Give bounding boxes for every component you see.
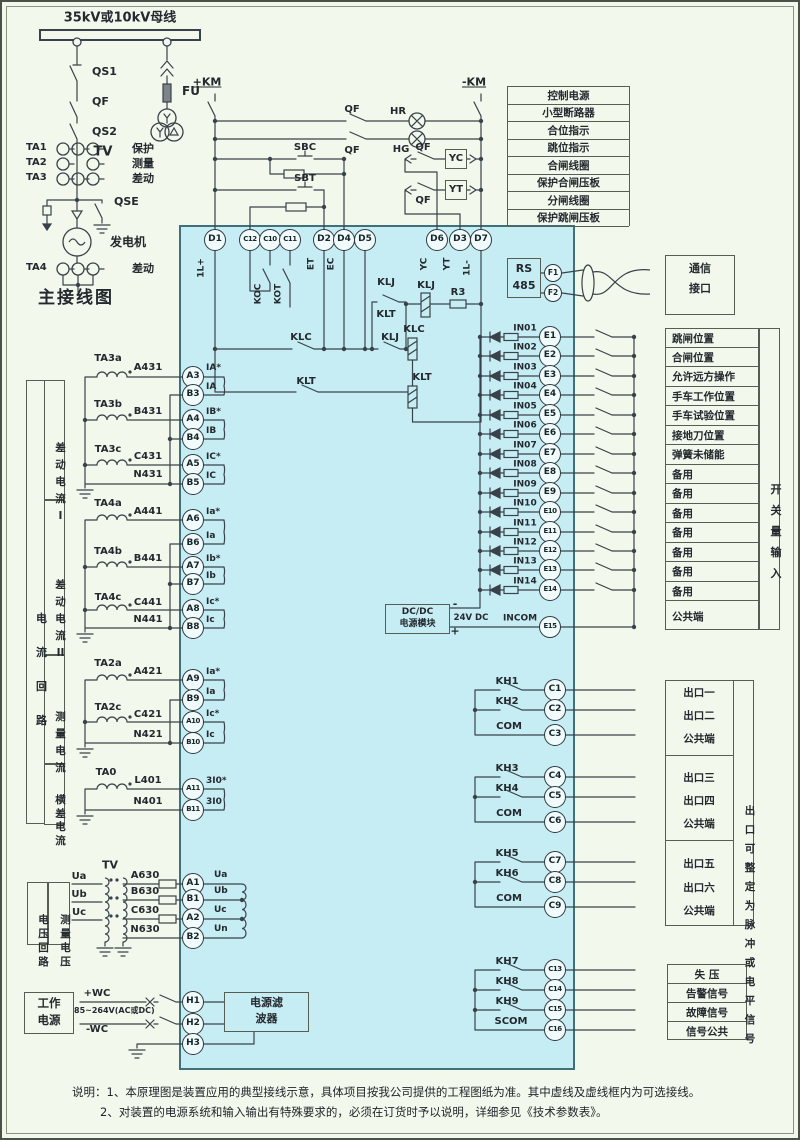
ta0-label: TA0 bbox=[96, 768, 117, 778]
legend-row: 保护合闸压板 bbox=[508, 175, 629, 193]
dcdc-minus-label: - bbox=[453, 599, 458, 610]
sig-ic2-star: Ic* bbox=[206, 598, 219, 607]
kh5-label: KH5 bbox=[495, 849, 518, 859]
terminal-A6: A6 bbox=[182, 509, 204, 531]
wire-n630: N630 bbox=[130, 925, 159, 935]
rs485-box: RS 485 bbox=[507, 258, 541, 298]
hg-lamp-label: HG bbox=[393, 145, 410, 155]
output-label: 出口五 bbox=[683, 859, 715, 870]
ta2-label: TA2 bbox=[26, 158, 47, 168]
ta2c-label: TA2c bbox=[95, 703, 122, 713]
ta2a-label: TA2a bbox=[94, 659, 122, 669]
rs485-label: RS bbox=[508, 259, 540, 278]
in-sig-label: IN07 bbox=[513, 442, 536, 451]
terminal-H2: H2 bbox=[182, 1013, 204, 1035]
kh1-label: KH1 bbox=[495, 677, 518, 687]
ta4a-label: TA4a bbox=[94, 499, 122, 509]
legend-row: 控制电源 bbox=[508, 87, 629, 105]
terminal-E2: E2 bbox=[539, 345, 561, 367]
kh4-label: KH4 bbox=[495, 784, 518, 794]
voltage-loop-label: 电压回路 bbox=[37, 913, 50, 969]
input-label: 备用 bbox=[666, 582, 758, 601]
input-label: 手车试验位置 bbox=[666, 406, 758, 426]
terminal-C13: C13 bbox=[544, 959, 566, 981]
output-label: 公共端 bbox=[683, 734, 715, 745]
terminal-C4: C4 bbox=[544, 766, 566, 788]
input-label: 合闸位置 bbox=[666, 348, 758, 367]
sig-ic3-star: Ic* bbox=[206, 710, 219, 719]
sbt-button-label: SBT bbox=[294, 174, 316, 184]
terminal-D4: D4 bbox=[333, 229, 355, 251]
terminal-F1: F1 bbox=[544, 264, 562, 282]
sig-ic-star: IC* bbox=[206, 453, 221, 462]
legend-row: 合闸线圈 bbox=[508, 157, 629, 175]
sbc-button-label: SBC bbox=[294, 143, 316, 153]
terminal-E10: E10 bbox=[539, 501, 561, 523]
terminal-H1: H1 bbox=[182, 991, 204, 1013]
input-label: 备用 bbox=[666, 523, 758, 543]
ta2-use-label: 测量 bbox=[132, 158, 154, 169]
terminal-C5: C5 bbox=[544, 786, 566, 808]
comm-port-box: 通信 接口 bbox=[665, 255, 735, 315]
tag-1l-minus: 1L- bbox=[464, 260, 473, 276]
comm-label: 通信 bbox=[666, 256, 734, 282]
km-minus-label: -KM bbox=[462, 77, 486, 88]
legend-row: 小型断路器 bbox=[508, 105, 629, 123]
incom-label: INCOM bbox=[503, 615, 537, 624]
terminal-C2: C2 bbox=[544, 699, 566, 721]
in-sig-label: IN13 bbox=[513, 558, 536, 567]
sig-ic3: Ic bbox=[206, 731, 215, 740]
page-title: 主接线图 bbox=[38, 290, 114, 307]
klj-rail-contact-label: KLJ bbox=[381, 333, 399, 343]
yc-coil-box: YC bbox=[445, 149, 467, 169]
klt-coil-label: KLT bbox=[412, 373, 431, 383]
kh6-label: KH6 bbox=[495, 869, 518, 879]
terminal-B5: B5 bbox=[182, 473, 204, 495]
klc-switch-label: KLC bbox=[290, 333, 311, 343]
tag-yt: YT bbox=[444, 258, 453, 271]
terminal-F2: F2 bbox=[544, 284, 562, 302]
signal-label: 失 压 bbox=[668, 965, 746, 984]
output-label: 出口六 bbox=[683, 883, 715, 894]
dcdc-plus-label: + bbox=[450, 626, 459, 637]
sig-ia2: Ia bbox=[206, 532, 215, 541]
r3-resistor-label: R3 bbox=[451, 288, 466, 298]
klj-coil-label: KLJ bbox=[417, 281, 435, 291]
legend-row: 分闸线圈 bbox=[508, 192, 629, 210]
wire-a441: A441 bbox=[134, 507, 163, 517]
output-label: 出口四 bbox=[683, 796, 715, 807]
wire-a630: A630 bbox=[131, 871, 160, 881]
sig-ic: IC bbox=[206, 472, 216, 481]
dcdc-label: DC/DC bbox=[386, 605, 449, 619]
input-label: 备用 bbox=[666, 543, 758, 562]
terminal-D1: D1 bbox=[204, 229, 226, 251]
wc-minus-label: -WC bbox=[86, 1025, 108, 1035]
output-side-label: 出口可整定为脉冲或电平信号 bbox=[743, 802, 757, 1049]
dcdc-volt-label: 24V DC bbox=[454, 614, 489, 623]
legend-row: 保护跳闸压板 bbox=[508, 210, 629, 228]
terminal-A11: A11 bbox=[182, 778, 204, 800]
input-common-label: 公共端 bbox=[666, 601, 758, 631]
terminal-C9: C9 bbox=[544, 896, 566, 918]
terminal-C8: C8 bbox=[544, 871, 566, 893]
input-labels-box: 跳闸位置 合闸位置 允许远方操作 手车工作位置 手车试验位置 接地刀位置 弹簧未… bbox=[665, 328, 759, 630]
terminal-E15: E15 bbox=[539, 616, 561, 638]
power-range-label: 85~264V(AC或DC) bbox=[74, 1007, 155, 1015]
wire-n401: N401 bbox=[133, 797, 162, 807]
dcdc-module-box: DC/DC 电源模块 bbox=[385, 604, 450, 634]
terminal-B11: B11 bbox=[182, 799, 204, 821]
terminal-C14: C14 bbox=[544, 979, 566, 1001]
input-label: 备用 bbox=[666, 504, 758, 523]
power-filter-box: 电源滤 波器 bbox=[224, 992, 309, 1032]
sig-ia: IA bbox=[206, 383, 216, 392]
wire-l401: L401 bbox=[134, 776, 161, 786]
in-sig-label: IN09 bbox=[513, 481, 536, 490]
tv-label: TV bbox=[94, 146, 113, 159]
sig-3i0-star: 3I0* bbox=[206, 777, 227, 786]
ua-label: Ua bbox=[72, 872, 87, 882]
power-filter-label2: 波器 bbox=[225, 1012, 308, 1026]
klj-contact-label: KLJ bbox=[377, 278, 395, 288]
in-sig-label: IN04 bbox=[513, 383, 536, 392]
wire-b431: B431 bbox=[134, 407, 163, 417]
terminal-D6: D6 bbox=[426, 229, 448, 251]
terminal-D2: D2 bbox=[313, 229, 335, 251]
km-plus-label: +KM bbox=[193, 77, 222, 88]
scom-label: SCOM bbox=[495, 1017, 528, 1027]
kh9-label: KH9 bbox=[495, 997, 518, 1007]
rs485-label2: 485 bbox=[508, 278, 540, 294]
ta4c-label: TA4c bbox=[95, 593, 122, 603]
wire-a421: A421 bbox=[134, 667, 163, 677]
terminal-C7: C7 bbox=[544, 851, 566, 873]
com3-label: COM bbox=[496, 894, 522, 904]
input-label: 备用 bbox=[666, 484, 758, 504]
terminal-C15: C15 bbox=[544, 999, 566, 1021]
qf-label: QF bbox=[92, 96, 109, 107]
wire-n441: N441 bbox=[133, 615, 162, 625]
sig-ua: Ua bbox=[214, 871, 227, 880]
diff-current2-label: 差动电流II bbox=[54, 577, 67, 662]
wire-a431: A431 bbox=[134, 363, 163, 373]
output-label: 出口三 bbox=[683, 773, 715, 784]
sig-ib2-star: Ib* bbox=[206, 555, 221, 564]
input-label: 跳闸位置 bbox=[666, 329, 758, 348]
terminal-C11: C11 bbox=[279, 229, 301, 251]
in-sig-label: IN05 bbox=[513, 403, 536, 412]
meas-voltage-label: 测量电压 bbox=[59, 913, 72, 969]
legend-row: 跳位指示 bbox=[508, 140, 629, 158]
in-sig-label: IN03 bbox=[513, 364, 536, 373]
working-power-label2: 电源 bbox=[25, 1013, 73, 1028]
sig-ub: Ub bbox=[214, 887, 228, 896]
current-loop-label: 电流回路 bbox=[35, 602, 48, 738]
qs2-label: QS2 bbox=[92, 126, 117, 137]
klt-switch-label: KLT bbox=[296, 377, 315, 387]
terminal-C12: C12 bbox=[239, 229, 261, 251]
terminal-B6: B6 bbox=[182, 533, 204, 555]
tag-ec: EC bbox=[328, 258, 337, 271]
com2-label: COM bbox=[496, 809, 522, 819]
qf-yt-label: QF bbox=[415, 196, 430, 206]
input-label: 允许远方操作 bbox=[666, 367, 758, 387]
power-filter-label: 电源滤 bbox=[225, 993, 308, 1012]
ta3-use-label: 差动 bbox=[132, 173, 154, 184]
signal-label: 信号公共 bbox=[668, 1022, 746, 1041]
sig-ia3: Ia bbox=[206, 688, 215, 697]
terminal-D7: D7 bbox=[470, 229, 492, 251]
terminal-A9: A9 bbox=[182, 669, 204, 691]
ta4-use-label: 差动 bbox=[132, 263, 154, 274]
sig-ia3-star: Ia* bbox=[206, 668, 220, 677]
klc-coil-label: KLC bbox=[403, 325, 424, 335]
klt-contact-label: KLT bbox=[376, 310, 395, 320]
kh2-label: KH2 bbox=[495, 697, 518, 707]
qf-contact1-label: QF bbox=[344, 105, 359, 115]
terminal-C3: C3 bbox=[544, 724, 566, 746]
terminal-E4: E4 bbox=[539, 384, 561, 406]
in-sig-label: IN02 bbox=[513, 344, 536, 353]
working-power-label: 工作 bbox=[25, 993, 73, 1013]
sig-uc: Uc bbox=[214, 906, 227, 915]
wire-c431: C431 bbox=[134, 452, 162, 462]
wire-n421: N421 bbox=[133, 730, 162, 740]
com1-label: COM bbox=[496, 722, 522, 732]
ta1-label: TA1 bbox=[26, 143, 47, 153]
terminal-D5: D5 bbox=[354, 229, 376, 251]
kh3-label: KH3 bbox=[495, 764, 518, 774]
kh8-label: KH8 bbox=[495, 977, 518, 987]
tag-yc: YC bbox=[421, 258, 430, 271]
signal-box: 失 压 告警信号 故障信号 信号公共 bbox=[667, 964, 747, 1040]
in-sig-label: IN06 bbox=[513, 422, 536, 431]
terminal-H3: H3 bbox=[182, 1033, 204, 1055]
tag-koc: KOC bbox=[255, 284, 264, 305]
comm-label2: 接口 bbox=[666, 282, 734, 296]
sig-ib: IB bbox=[206, 427, 216, 436]
ta3a-label: TA3a bbox=[94, 354, 122, 364]
terminal-E8: E8 bbox=[539, 462, 561, 484]
input-label: 备用 bbox=[666, 465, 758, 484]
terminal-D3: D3 bbox=[449, 229, 471, 251]
tag-kot: KOT bbox=[275, 284, 284, 304]
signal-label: 告警信号 bbox=[668, 984, 746, 1003]
in-sig-label: IN01 bbox=[513, 325, 536, 334]
ub-label: Ub bbox=[71, 890, 86, 900]
qf-contact2-label: QF bbox=[344, 146, 359, 156]
wire-b441: B441 bbox=[134, 554, 163, 564]
sig-3i0: 3I0 bbox=[206, 798, 222, 807]
generator-label: 发电机 bbox=[110, 236, 146, 248]
kh7-label: KH7 bbox=[495, 957, 518, 967]
terminal-B10: B10 bbox=[182, 732, 204, 754]
in-sig-label: IN11 bbox=[513, 520, 536, 529]
sig-ia-star: IA* bbox=[206, 364, 221, 373]
terminal-B4: B4 bbox=[182, 428, 204, 450]
sig-ic2: Ic bbox=[206, 616, 215, 625]
terminal-C10: C10 bbox=[259, 229, 281, 251]
schematic-page: 控制电源 小型断路器 合位指示 跳位指示 合闸线圈 保护合闸压板 分闸线圈 保护… bbox=[0, 0, 800, 1140]
note-line-1: 说明：1、本原理图是装置应用的典型接线示意，具体项目按我公司提供的工程图纸为准。… bbox=[72, 1087, 700, 1099]
tag-et: ET bbox=[308, 258, 317, 270]
input-label: 接地刀位置 bbox=[666, 426, 758, 445]
terminal-B7: B7 bbox=[182, 573, 204, 595]
input-label: 手车工作位置 bbox=[666, 387, 758, 406]
dcdc-label2: 电源模块 bbox=[386, 619, 449, 629]
ta3c-label: TA3c bbox=[95, 445, 122, 455]
in-sig-label: IN10 bbox=[513, 500, 536, 509]
input-label: 弹簧未储能 bbox=[666, 445, 758, 465]
legend-row: 合位指示 bbox=[508, 122, 629, 140]
working-power-box: 工作 电源 bbox=[24, 992, 74, 1034]
control-legend-box: 控制电源 小型断路器 合位指示 跳位指示 合闸线圈 保护合闸压板 分闸线圈 保护… bbox=[507, 86, 630, 226]
in-sig-label: IN12 bbox=[513, 539, 536, 548]
wc-plus-label: +WC bbox=[84, 989, 111, 999]
uc-label: Uc bbox=[72, 908, 86, 918]
ta4-label: TA4 bbox=[26, 263, 47, 273]
terminal-B8: B8 bbox=[182, 617, 204, 639]
qse-label: QSE bbox=[114, 196, 139, 207]
terminal-C16: C16 bbox=[544, 1019, 566, 1041]
signal-label: 故障信号 bbox=[668, 1003, 746, 1022]
output-label: 出口二 bbox=[683, 711, 715, 722]
terminal-E6: E6 bbox=[539, 423, 561, 445]
busbar-label: 35kV或10kV母线 bbox=[64, 12, 177, 25]
terminal-E13: E13 bbox=[539, 559, 561, 581]
input-label: 备用 bbox=[666, 562, 758, 582]
wire-b630: B630 bbox=[131, 887, 160, 897]
hr-lamp-label: HR bbox=[390, 107, 406, 117]
terminal-C1: C1 bbox=[544, 679, 566, 701]
tag-1l-plus: 1L+ bbox=[198, 258, 207, 278]
output-label: 出口一 bbox=[683, 688, 715, 699]
terminal-A10: A10 bbox=[182, 711, 204, 733]
output-label: 公共端 bbox=[683, 819, 715, 830]
meas-current-label: 测量电流 bbox=[54, 709, 67, 777]
ta1-use-label: 保护 bbox=[132, 143, 154, 154]
qs1-label: QS1 bbox=[92, 66, 117, 77]
cross-diff-label: 横差电流 bbox=[54, 794, 67, 848]
ta3b-label: TA3b bbox=[94, 400, 122, 410]
terminal-B2: B2 bbox=[182, 927, 204, 949]
sig-un: Un bbox=[214, 925, 228, 934]
note-line-2: 2、对装置的电源系统和输入输出有特殊要求的，必须在订货时予以说明，详细参见《技术… bbox=[100, 1107, 608, 1119]
sig-ib2: Ib bbox=[206, 572, 216, 581]
in-sig-label: IN14 bbox=[513, 578, 536, 587]
diff-current1-label: 差动电流I bbox=[54, 440, 67, 525]
ta4b-label: TA4b bbox=[94, 547, 122, 557]
wire-c441: C441 bbox=[134, 598, 162, 608]
wire-n431: N431 bbox=[133, 470, 162, 480]
sig-ib-star: IB* bbox=[206, 408, 221, 417]
terminal-B9: B9 bbox=[182, 689, 204, 711]
sig-ia2-star: Ia* bbox=[206, 508, 220, 517]
wire-c421: C421 bbox=[134, 710, 162, 720]
terminal-B3: B3 bbox=[182, 384, 204, 406]
in-sig-label: IN08 bbox=[513, 461, 536, 470]
input-group-label: 开关量输入 bbox=[769, 479, 783, 584]
qf-yc-label: QF bbox=[415, 143, 430, 153]
tv2-label: TV bbox=[102, 860, 118, 871]
ta3-label: TA3 bbox=[26, 173, 47, 183]
wire-c630: C630 bbox=[131, 906, 159, 916]
output-label: 公共端 bbox=[683, 906, 715, 917]
terminal-E14: E14 bbox=[539, 579, 561, 601]
terminal-C6: C6 bbox=[544, 811, 566, 833]
yt-coil-box: YT bbox=[445, 180, 467, 200]
